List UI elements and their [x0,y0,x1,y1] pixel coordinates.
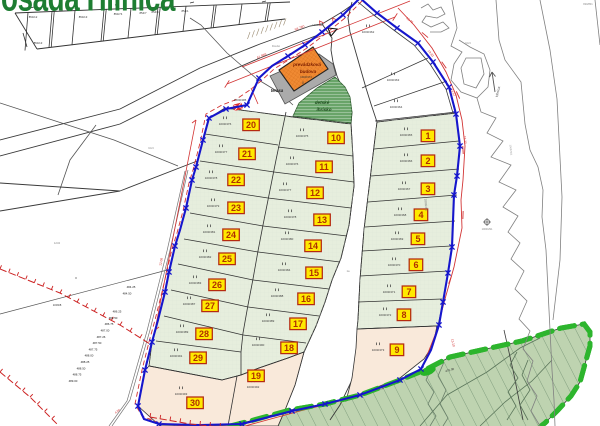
svg-text:1003/476: 1003/476 [219,122,232,126]
svg-text:1003/471: 1003/471 [383,290,396,294]
svg-text:1: 1 [425,131,430,141]
svg-text:9: 9 [394,345,399,355]
svg-text:486.50: 486.50 [109,316,118,320]
svg-text:486.25: 486.25 [113,310,122,314]
svg-text:489.00: 489.00 [69,379,78,383]
svg-text:1003/481: 1003/481 [203,230,216,234]
svg-text:II: II [75,276,77,280]
svg-text:484.25: 484.25 [127,285,136,289]
svg-text:5: 5 [415,234,420,244]
svg-text:9424: 9424 [465,41,471,45]
svg-text:28: 28 [199,329,209,339]
svg-text:854/13: 854/13 [34,41,43,45]
svg-text:13: 13 [317,215,327,225]
svg-text:22: 22 [231,175,241,185]
svg-text:10: 10 [331,133,341,143]
svg-text:17: 17 [293,319,303,329]
svg-text:1003/490: 1003/490 [252,343,265,347]
svg-text:1003/476: 1003/476 [286,162,299,166]
svg-text:budova: budova [300,69,317,74]
svg-text:1003/473: 1003/473 [372,348,385,352]
svg-text:Drevko: Drevko [272,44,281,48]
svg-text:18: 18 [284,343,294,353]
svg-text:1003/492: 1003/492 [247,385,260,389]
svg-text:1003/477: 1003/477 [279,188,292,192]
svg-text:20: 20 [246,120,256,130]
svg-text:detské: detské [315,100,330,105]
svg-text:26: 26 [212,280,222,290]
svg-text:1003/474: 1003/474 [300,75,312,79]
svg-text:486.75: 486.75 [105,322,114,326]
svg-text:11: 11 [319,162,329,172]
svg-text:1003/484: 1003/484 [278,268,291,272]
svg-text:820/801: 820/801 [583,2,593,6]
svg-text:1003/464: 1003/464 [390,105,403,109]
svg-text:1003/466: 1003/466 [400,159,413,163]
svg-text:1003/478: 1003/478 [284,215,297,219]
svg-text:14: 14 [308,241,318,251]
svg-text:1003/477: 1003/477 [215,150,228,154]
svg-text:9424: 9424 [148,146,154,150]
svg-text:terasa: terasa [271,88,284,93]
svg-text:II: II [302,81,304,85]
svg-text:854/1: 854/1 [182,9,189,13]
svg-text:1003/465: 1003/465 [400,133,413,137]
svg-text:16: 16 [301,294,311,304]
svg-text:1003/472: 1003/472 [379,313,392,317]
svg-text:24: 24 [226,230,236,240]
svg-text:30: 30 [190,398,200,408]
svg-text:1003/469: 1003/469 [391,237,404,241]
svg-text:487.26: 487.26 [97,335,106,339]
svg-text:19: 19 [251,371,261,381]
svg-text:21: 21 [242,149,252,159]
svg-text:1003/489: 1003/489 [262,319,275,323]
svg-text:488.75: 488.75 [73,373,82,377]
svg-text:1003/479: 1003/479 [207,204,220,208]
svg-text:1003/475: 1003/475 [296,134,309,138]
svg-text:4: 4 [418,210,423,220]
svg-text:488.00: 488.00 [85,354,94,358]
svg-text:prevádzková: prevádzková [292,62,321,67]
svg-text:487.75: 487.75 [89,347,98,351]
svg-text:1003/8: 1003/8 [53,303,62,307]
svg-text:8: 8 [401,310,406,320]
svg-text:7: 7 [406,287,411,297]
svg-text:1003/496: 1003/496 [312,23,324,27]
svg-text:1a: 1a [346,269,350,273]
svg-text:1003/291: 1003/291 [482,227,493,231]
svg-text:1003/482: 1003/482 [199,255,212,259]
svg-text:1003/488: 1003/488 [271,294,284,298]
svg-text:487.00: 487.00 [101,329,110,333]
svg-text:488.25: 488.25 [81,360,90,364]
svg-text:6: 6 [413,260,418,270]
svg-text:1003/462: 1003/462 [362,30,375,34]
svg-text:1003/468: 1003/468 [394,213,407,217]
svg-text:1003/467: 1003/467 [398,187,411,191]
svg-text:25: 25 [222,254,232,264]
svg-text:1003/493: 1003/493 [175,392,188,396]
svg-text:1003/495: 1003/495 [234,98,247,102]
svg-text:3: 3 [425,184,430,194]
svg-text:27: 27 [205,301,215,311]
svg-text:osada Hlinica: osada Hlinica [1,0,176,20]
svg-text:488.50: 488.50 [77,366,86,370]
svg-text:1003/480: 1003/480 [281,237,294,241]
svg-text:23: 23 [231,203,241,213]
svg-text:1003/489: 1003/489 [176,330,189,334]
svg-text:1003/487: 1003/487 [183,302,196,306]
svg-text:1003/478: 1003/478 [205,176,218,180]
svg-text:487.50: 487.50 [93,341,102,345]
svg-text:2: 2 [425,156,430,166]
svg-text:1003/463: 1003/463 [387,78,400,82]
svg-text:12: 12 [310,188,320,198]
svg-text:1003/483: 1003/483 [189,281,202,285]
svg-text:1003/491: 1003/491 [170,354,183,358]
svg-text:1234: 1234 [54,241,61,245]
svg-text:1003/470: 1003/470 [388,263,401,267]
svg-text:15: 15 [309,268,319,278]
svg-text:29: 29 [193,353,203,363]
svg-text:ihrisko: ihrisko [316,107,331,112]
svg-text:484.50: 484.50 [123,291,132,295]
